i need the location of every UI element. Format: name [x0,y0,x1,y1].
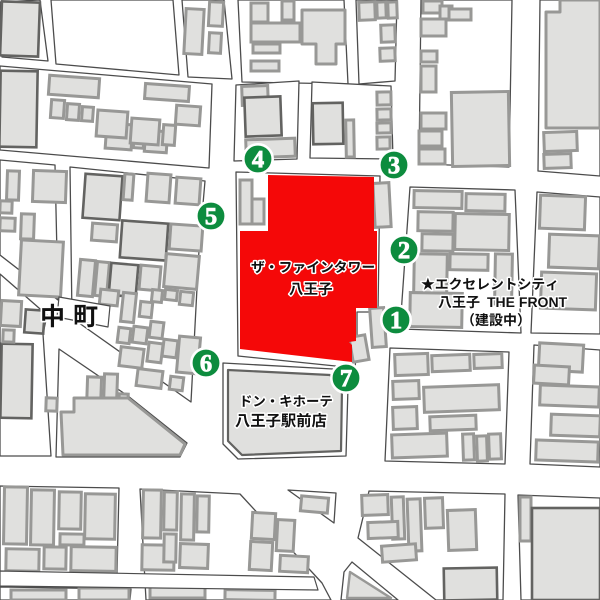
svg-text:THE FRONT: THE FRONT [487,294,568,310]
